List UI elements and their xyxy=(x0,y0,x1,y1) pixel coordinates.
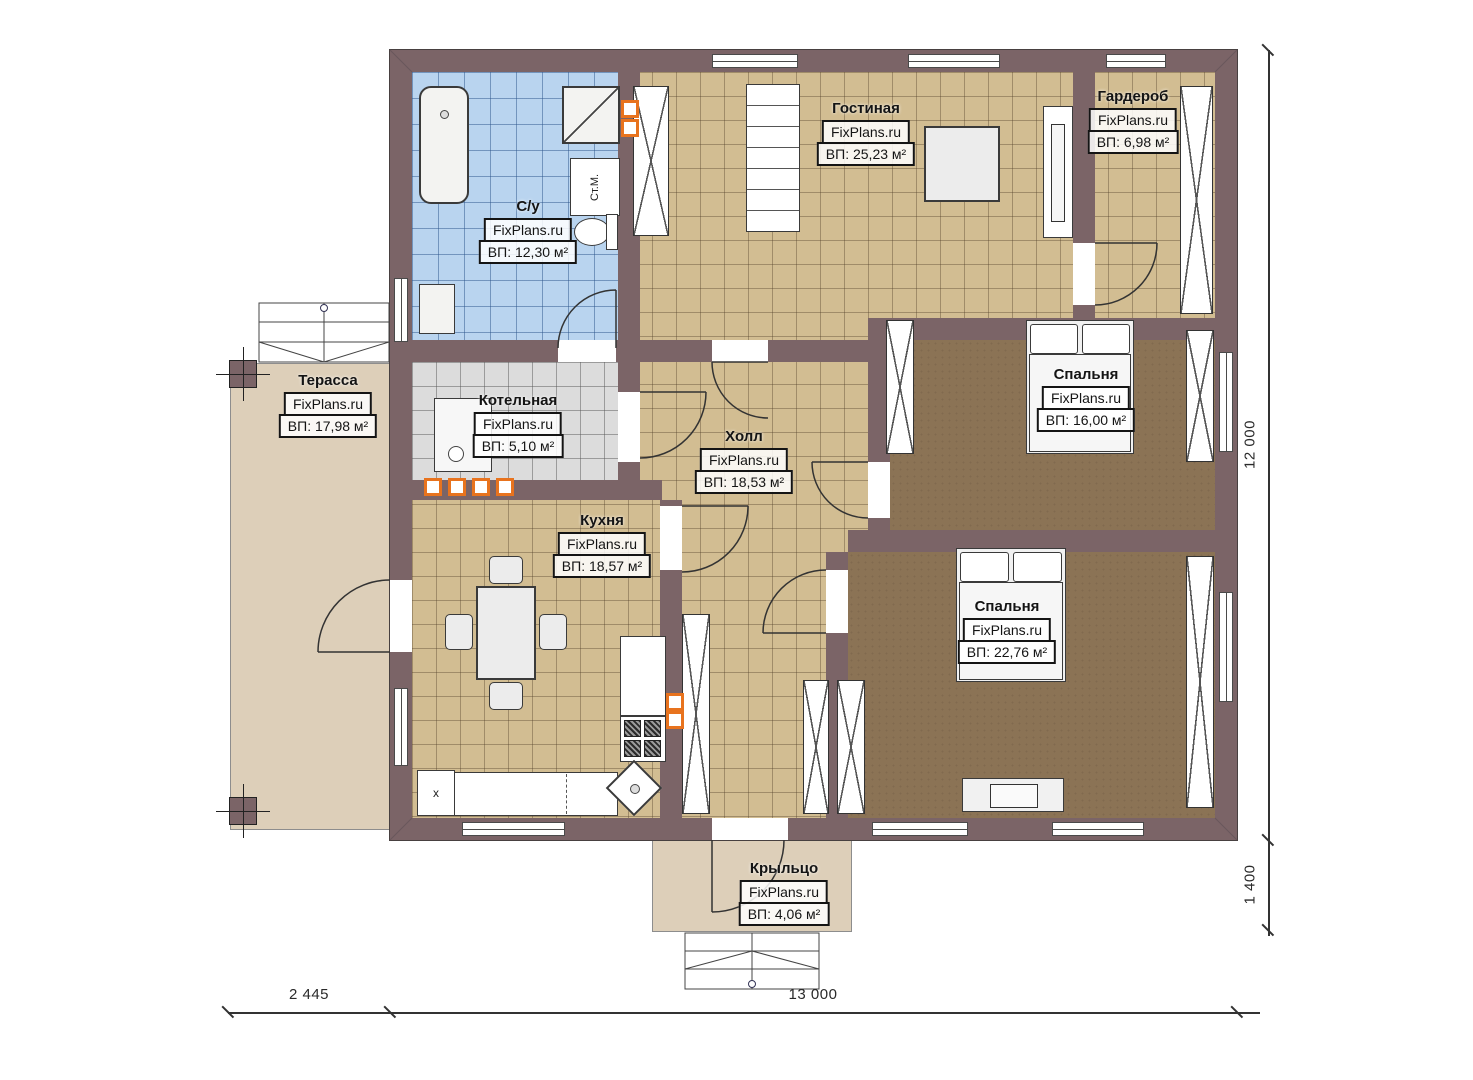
boiler-pipe xyxy=(448,446,464,462)
shelf-unit xyxy=(746,84,800,232)
bathroom-sink xyxy=(419,284,455,334)
opening-living-hall xyxy=(712,340,768,362)
window-kitchen xyxy=(462,822,565,836)
stove-burner xyxy=(624,740,641,757)
stove xyxy=(620,716,666,762)
closet-hall-left xyxy=(682,614,710,814)
closet-wardrobe-room xyxy=(1180,86,1213,314)
sink-drain xyxy=(630,784,640,794)
bed-1-pillow xyxy=(1082,324,1130,354)
column-marker-bottom xyxy=(229,797,257,825)
heat-marker xyxy=(621,119,639,137)
floor-plan-canvas: Ст.М. x xyxy=(0,0,1473,1080)
room-label-hall: Холл FixPlans.ru ВП: 18,53 м² xyxy=(695,428,793,494)
shower-tray xyxy=(562,86,620,144)
counter-divider xyxy=(566,774,568,814)
room-area: ВП: 18,53 м² xyxy=(695,470,793,494)
room-name: Котельная xyxy=(473,392,564,409)
heat-marker xyxy=(621,100,639,118)
room-name: Гостиная xyxy=(817,100,915,117)
closet-bedroom1-right xyxy=(1186,330,1214,462)
room-area: ВП: 18,57 м² xyxy=(553,554,651,578)
kitchen-counter xyxy=(452,772,618,816)
room-area: ВП: 5,10 м² xyxy=(473,434,564,458)
heat-marker xyxy=(666,693,684,711)
opening-terrace-door xyxy=(390,580,412,652)
tv-cabinet-inner xyxy=(1051,124,1065,222)
watermark-fixplans: FixPlans.ru xyxy=(558,532,646,556)
room-label-wardrobe: Гардероб FixPlans.ru ВП: 6,98 м² xyxy=(1088,88,1179,154)
room-label-boiler: Котельная FixPlans.ru ВП: 5,10 м² xyxy=(473,392,564,458)
stove-burner xyxy=(644,720,661,737)
opening-bedroom2-door xyxy=(826,570,848,633)
dresser-inner xyxy=(990,784,1038,808)
window-bedroom2-right xyxy=(1219,592,1233,702)
bathtub-drain xyxy=(440,110,449,119)
room-area: ВП: 17,98 м² xyxy=(279,414,377,438)
porch-stairs xyxy=(684,932,820,990)
washing-machine: Ст.М. xyxy=(570,158,620,216)
room-label-terrace: Терасса FixPlans.ru ВП: 17,98 м² xyxy=(279,372,377,438)
opening-bathroom-door xyxy=(558,340,616,362)
dimension-line-bottom xyxy=(228,1012,1260,1014)
washing-machine-label: Ст.М. xyxy=(571,159,619,215)
window-top-1 xyxy=(712,54,798,68)
room-label-kitchen: Кухня FixPlans.ru ВП: 18,57 м² xyxy=(553,512,651,578)
watermark-fixplans: FixPlans.ru xyxy=(740,880,828,904)
room-label-bathroom: С/у FixPlans.ru ВП: 12,30 м² xyxy=(479,198,577,264)
room-name: Гардероб xyxy=(1088,88,1179,105)
watermark-fixplans: FixPlans.ru xyxy=(1089,108,1177,132)
room-name: Спальня xyxy=(958,598,1056,615)
watermark-fixplans: FixPlans.ru xyxy=(484,218,572,242)
closet-hall-right-b xyxy=(837,680,865,814)
closet-hall-right-a xyxy=(803,680,829,814)
terrace-stairs xyxy=(258,302,390,363)
stove-burner xyxy=(624,720,641,737)
room-area: ВП: 25,23 м² xyxy=(817,142,915,166)
dim-house-height: 12 000 xyxy=(1242,405,1259,485)
room-name: Крыльцо xyxy=(739,860,830,877)
window-bathroom xyxy=(394,278,408,342)
room-area: ВП: 6,98 м² xyxy=(1088,130,1179,154)
room-label-bedroom-2: Спальня FixPlans.ru ВП: 22,76 м² xyxy=(958,598,1056,664)
heat-marker xyxy=(666,711,684,729)
room-area: ВП: 22,76 м² xyxy=(958,640,1056,664)
bathtub xyxy=(419,86,469,204)
watermark-fixplans: FixPlans.ru xyxy=(474,412,562,436)
room-name: Спальня xyxy=(1037,366,1135,383)
heat-marker xyxy=(424,478,442,496)
opening-entrance-door xyxy=(712,818,788,840)
dim-porch-depth: 1 400 xyxy=(1242,845,1259,925)
room-area: ВП: 12,30 м² xyxy=(479,240,577,264)
bed-2-pillow xyxy=(1013,552,1062,582)
heat-marker xyxy=(472,478,490,496)
room-area: ВП: 4,06 м² xyxy=(739,902,830,926)
chair-bottom xyxy=(489,682,523,710)
window-top-2 xyxy=(908,54,1000,68)
watermark-fixplans: FixPlans.ru xyxy=(822,120,910,144)
dim-house-width: 13 000 xyxy=(753,986,873,1003)
window-bedroom1 xyxy=(1219,352,1233,452)
heat-marker xyxy=(496,478,514,496)
opening-kitchen-door xyxy=(660,506,682,570)
room-name: С/у xyxy=(479,198,577,215)
chair-left xyxy=(445,614,473,650)
chair-right xyxy=(539,614,567,650)
chair-top xyxy=(489,556,523,584)
room-label-porch: Крыльцо FixPlans.ru ВП: 4,06 м² xyxy=(739,860,830,926)
column-marker-top xyxy=(229,360,257,388)
room-name: Холл xyxy=(695,428,793,445)
watermark-fixplans: FixPlans.ru xyxy=(700,448,788,472)
room-name: Кухня xyxy=(553,512,651,529)
toilet-tank xyxy=(606,214,618,250)
watermark-fixplans: FixPlans.ru xyxy=(963,618,1051,642)
dimension-line-right xyxy=(1268,50,1270,936)
bed-1-pillow xyxy=(1030,324,1078,354)
kitchen-table xyxy=(476,586,536,680)
closet-bedroom2-right xyxy=(1186,556,1214,808)
opening-wardrobe-door xyxy=(1073,243,1095,305)
room-area: ВП: 16,00 м² xyxy=(1037,408,1135,432)
window-top-3 xyxy=(1106,54,1166,68)
stove-burner xyxy=(644,740,661,757)
window-kitchen-left xyxy=(394,688,408,766)
room-label-bedroom-1: Спальня FixPlans.ru ВП: 16,00 м² xyxy=(1037,366,1135,432)
window-bedroom2-a xyxy=(872,822,968,836)
window-bedroom2-b xyxy=(1052,822,1144,836)
closet-bedroom1-left xyxy=(886,320,914,454)
room-label-living: Гостиная FixPlans.ru ВП: 25,23 м² xyxy=(817,100,915,166)
watermark-fixplans: FixPlans.ru xyxy=(1042,386,1130,410)
room-name: Терасса xyxy=(279,372,377,389)
bed-2-pillow xyxy=(960,552,1009,582)
watermark-fixplans: FixPlans.ru xyxy=(284,392,372,416)
kitchen-counter-right xyxy=(620,636,666,716)
opening-bedroom1-door xyxy=(868,462,890,518)
opening-boiler-door xyxy=(618,392,640,462)
dim-terrace-width: 2 445 xyxy=(249,986,369,1003)
heat-marker xyxy=(448,478,466,496)
living-table xyxy=(924,126,1000,202)
kitchen-corner-box: x xyxy=(417,770,455,816)
toilet-bowl xyxy=(574,218,610,246)
